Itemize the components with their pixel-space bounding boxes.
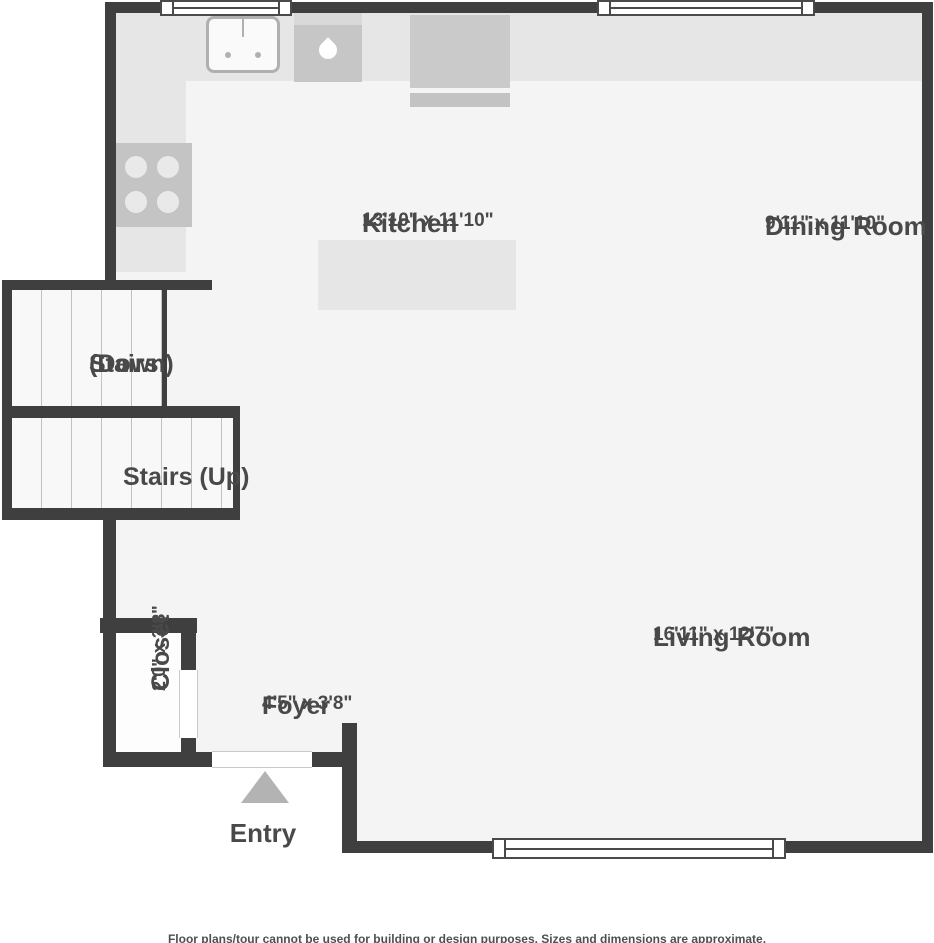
dishwasher-icon [294, 13, 362, 82]
stove-burner [125, 191, 147, 213]
window-cap [609, 2, 611, 14]
floor-living-bottom [350, 753, 928, 848]
sink-faucet-dot-left [225, 52, 231, 58]
sink-icon [206, 16, 280, 73]
wall-left-upper [105, 2, 116, 283]
disclaimer-text: Floor plans/tour cannot be used for buil… [168, 932, 766, 943]
living-dims: 16'11" x 12'7" [653, 622, 774, 648]
stove-burner [157, 156, 179, 178]
closet-dims: 2'0" x 3'8" [147, 605, 171, 691]
wall-foyer-right [342, 723, 357, 853]
wall-right [922, 2, 933, 853]
entry-arrow-icon [241, 771, 289, 803]
wall-stairs-down-divider [162, 285, 167, 406]
window-cap [801, 2, 803, 14]
refrigerator-drawer [410, 93, 510, 107]
sink-divider [242, 19, 244, 37]
kitchen-dims: 13'10" x 11'10" [362, 208, 494, 234]
kitchen-island [318, 240, 516, 310]
stove-burner [157, 191, 179, 213]
window-pane-line [504, 848, 774, 850]
wall-stairs-middle [2, 406, 240, 418]
wall-left-lower [103, 518, 116, 767]
wall-stairs-left [2, 280, 12, 520]
refrigerator [410, 15, 510, 88]
window-cap [278, 2, 280, 14]
entry-door-opening [212, 751, 312, 768]
window-icon [492, 838, 786, 859]
stairs-down-line2: (Down) [89, 348, 174, 380]
wall-stairs-top [2, 280, 212, 290]
label-entry: Entry [230, 818, 296, 848]
window-pane-line [609, 7, 803, 9]
dining-dims: 9'11" x 11'10" [765, 211, 885, 237]
foyer-dims: 4'5" x 3'8" [262, 691, 352, 717]
window-cap [772, 840, 774, 857]
window-icon [160, 0, 292, 16]
dishwasher-top-band [294, 13, 362, 25]
floor-plan-canvas: Kitchen 13'10" x 11'10" Dining Room 9'11… [0, 0, 934, 943]
closet-door-opening [179, 670, 198, 738]
stairs-up-text: Stairs (Up) [123, 461, 249, 493]
window-pane-line [172, 7, 280, 9]
window-icon [597, 0, 815, 16]
stove-burner [125, 156, 147, 178]
stove-icon [116, 143, 192, 227]
window-cap [172, 2, 174, 14]
wall-stairs-bottom [2, 508, 240, 520]
sink-faucet-dot-right [255, 52, 261, 58]
window-cap [504, 840, 506, 857]
water-droplet-icon [315, 37, 340, 62]
